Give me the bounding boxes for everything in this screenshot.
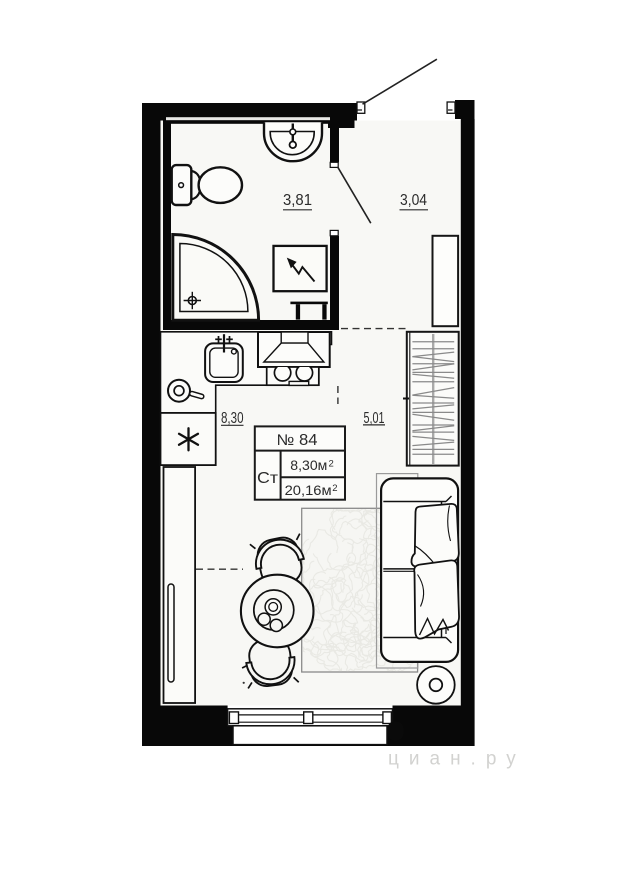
svg-text:3,81: 3,81 [283,192,312,209]
svg-text:20,16м: 20,16м [285,482,332,498]
svg-text:2: 2 [332,483,337,494]
svg-text:3,04: 3,04 [400,192,427,209]
svg-text:2: 2 [329,459,334,470]
svg-text:циан.ру: циан.ру [388,749,526,770]
svg-text:8,30: 8,30 [221,410,244,427]
svg-text:№ 84: № 84 [277,432,318,449]
svg-text:Ст: Ст [257,470,279,487]
svg-text:8,30м: 8,30м [290,457,327,473]
